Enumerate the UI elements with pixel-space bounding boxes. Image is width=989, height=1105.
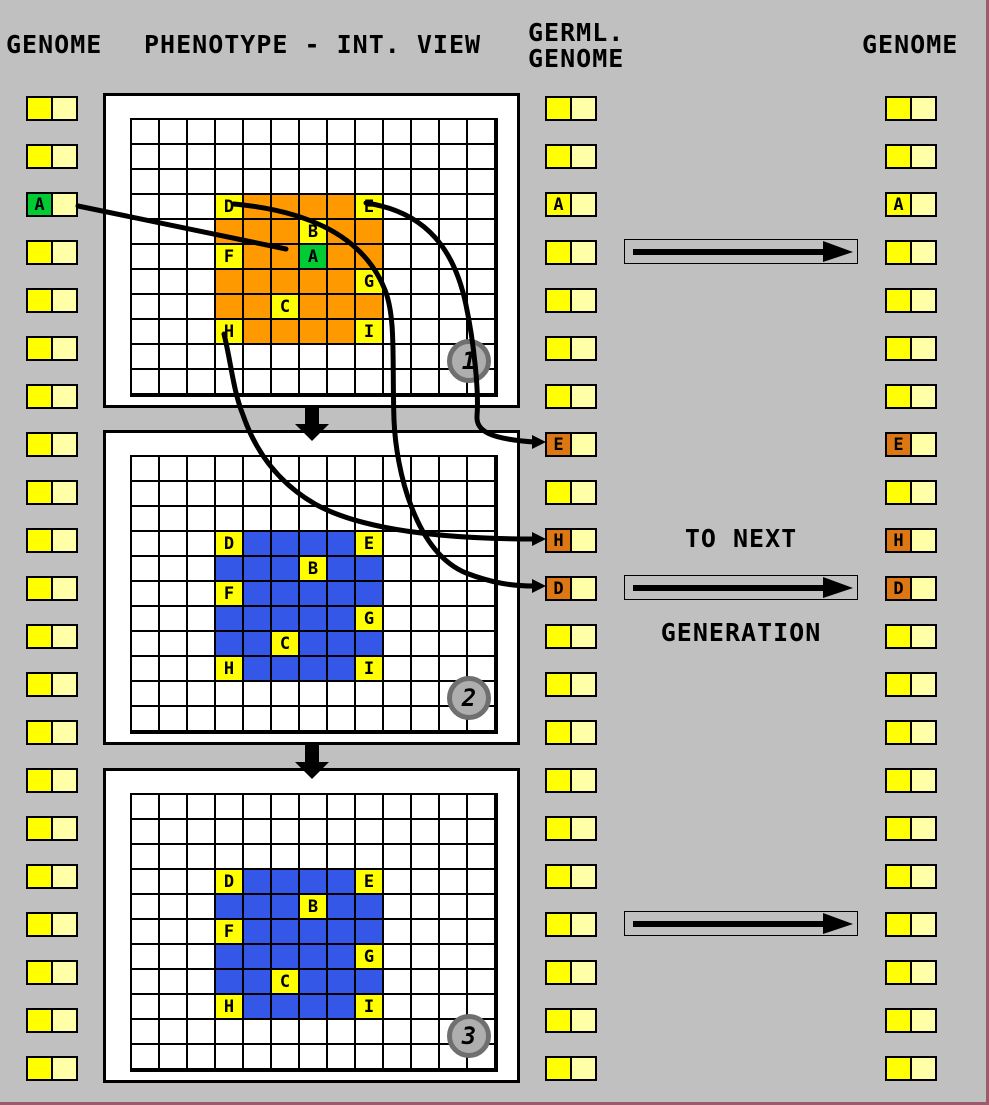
grid-cell — [384, 370, 412, 395]
grid-cell — [384, 945, 412, 970]
grid-cell — [132, 507, 160, 532]
body-cell — [272, 270, 300, 295]
gene-pair — [26, 240, 80, 265]
body-cell — [300, 532, 328, 557]
gene-allele-right — [51, 336, 78, 361]
grid-cell — [356, 370, 384, 395]
gene-allele-right — [570, 912, 597, 937]
grid-cell — [300, 457, 328, 482]
gene-pair-e: E — [885, 432, 939, 457]
grid-cell — [272, 482, 300, 507]
gene-allele-right — [910, 144, 937, 169]
gene-allele-right — [910, 720, 937, 745]
arrowhead-d — [532, 579, 546, 593]
gene-allele-a: A — [885, 192, 912, 217]
grid-cell — [412, 607, 440, 632]
body-cell — [272, 607, 300, 632]
grid-cell — [160, 120, 188, 145]
gene-pair — [545, 336, 599, 361]
grid-cell — [188, 845, 216, 870]
grid-cell — [160, 482, 188, 507]
grid-cell — [300, 145, 328, 170]
body-cell — [244, 920, 272, 945]
grid-cell — [440, 457, 468, 482]
gene-allele-right — [51, 96, 78, 121]
body-cell — [300, 945, 328, 970]
gene-pair — [26, 528, 80, 553]
grid-cell — [160, 457, 188, 482]
gene-pair — [26, 384, 80, 409]
grid-cell — [272, 120, 300, 145]
body-cell — [300, 657, 328, 682]
gene-allele-e: E — [885, 432, 912, 457]
body-cell — [216, 970, 244, 995]
gene-pair — [26, 1056, 80, 1081]
body-cell — [328, 895, 356, 920]
grid-cell — [160, 707, 188, 732]
gene-allele-left — [26, 288, 53, 313]
gene-allele-right — [570, 672, 597, 697]
grid-cell — [412, 120, 440, 145]
grid-cell — [412, 532, 440, 557]
body-cell — [272, 995, 300, 1020]
gene-pair — [885, 720, 939, 745]
grid-cell — [440, 820, 468, 845]
grid-cell — [160, 195, 188, 220]
grid-cell — [132, 845, 160, 870]
grid-cell — [188, 120, 216, 145]
gene-allele-right — [51, 624, 78, 649]
grid-cell — [244, 507, 272, 532]
gene-allele-left — [26, 960, 53, 985]
gene-pair — [885, 1056, 939, 1081]
grid-cell — [384, 1020, 412, 1045]
grid-cell — [160, 995, 188, 1020]
grid-cell — [188, 632, 216, 657]
grid-cell — [384, 507, 412, 532]
grid-cell — [356, 1020, 384, 1045]
gene-allele-right — [570, 1008, 597, 1033]
grid-cell — [440, 295, 468, 320]
body-cell — [356, 220, 384, 245]
grid-cell — [216, 507, 244, 532]
grid-cell — [384, 195, 412, 220]
gene-allele-right — [51, 720, 78, 745]
grid-cell — [412, 245, 440, 270]
grid-cell — [440, 795, 468, 820]
gene-allele-left — [885, 720, 912, 745]
grid-cell — [188, 582, 216, 607]
body-cell — [300, 270, 328, 295]
grid-cell — [384, 295, 412, 320]
gene-allele-left — [885, 624, 912, 649]
grid-cell — [412, 220, 440, 245]
grid-cell — [244, 145, 272, 170]
phenotype-grid-2: DEBFGCHI — [130, 455, 498, 734]
body-cell — [328, 245, 356, 270]
grid-cell — [132, 295, 160, 320]
grid-cell — [188, 320, 216, 345]
gene-allele-left — [26, 384, 53, 409]
gene-allele-right — [910, 384, 937, 409]
body-cell — [356, 245, 384, 270]
gene-allele-right — [910, 1056, 937, 1081]
grid-cell — [244, 845, 272, 870]
grid-cell — [384, 920, 412, 945]
body-cell — [300, 970, 328, 995]
gene-allele-right — [910, 864, 937, 889]
grid-cell — [160, 345, 188, 370]
gene-pair — [26, 144, 80, 169]
gene-allele-left — [26, 336, 53, 361]
body-cell — [244, 870, 272, 895]
grid-cell — [160, 945, 188, 970]
grid-cell — [412, 707, 440, 732]
gene-allele-right — [51, 480, 78, 505]
gene-cell-e: E — [356, 870, 384, 895]
gene-allele-right — [570, 144, 597, 169]
right-arrow-icon — [625, 912, 857, 935]
generation-arrow-1 — [624, 239, 858, 264]
grid-cell — [160, 920, 188, 945]
grid-cell — [132, 195, 160, 220]
body-cell — [300, 582, 328, 607]
grid-cell — [468, 845, 496, 870]
gene-cell-b: B — [300, 895, 328, 920]
grid-cell — [384, 895, 412, 920]
grid-cell — [468, 270, 496, 295]
gene-pair — [545, 624, 599, 649]
grid-cell — [384, 270, 412, 295]
body-cell — [328, 632, 356, 657]
gene-allele-left — [885, 912, 912, 937]
grid-cell — [216, 120, 244, 145]
gene-allele-right — [910, 336, 937, 361]
body-cell — [216, 895, 244, 920]
body-cell — [272, 195, 300, 220]
gene-allele-left — [26, 1008, 53, 1033]
grid-cell — [132, 170, 160, 195]
gene-allele-left — [545, 864, 572, 889]
body-cell — [328, 607, 356, 632]
gene-allele-right — [570, 432, 597, 457]
body-cell — [356, 582, 384, 607]
grid-cell — [412, 632, 440, 657]
gene-allele-left — [26, 720, 53, 745]
grid-cell — [328, 170, 356, 195]
gene-pair — [26, 288, 80, 313]
grid-cell — [216, 482, 244, 507]
gene-pair — [26, 336, 80, 361]
gene-pair — [885, 240, 939, 265]
right-arrow-icon — [625, 576, 857, 599]
grid-cell — [412, 145, 440, 170]
gene-cell-d: D — [216, 870, 244, 895]
grid-cell — [384, 795, 412, 820]
body-cell — [244, 220, 272, 245]
gene-pair — [885, 336, 939, 361]
gene-allele-right — [910, 528, 937, 553]
grid-cell — [412, 295, 440, 320]
gene-allele-left — [885, 1056, 912, 1081]
grid-cell — [384, 457, 412, 482]
grid-cell — [328, 845, 356, 870]
grid-cell — [440, 120, 468, 145]
grid-cell — [160, 582, 188, 607]
gene-allele-left — [26, 864, 53, 889]
grid-cell — [188, 270, 216, 295]
gene-allele-right — [910, 1008, 937, 1033]
grid-cell — [384, 632, 412, 657]
grid-cell — [356, 120, 384, 145]
grid-cell — [412, 845, 440, 870]
gene-pair — [545, 1056, 599, 1081]
grid-cell — [160, 682, 188, 707]
body-cell — [216, 632, 244, 657]
body-cell — [328, 295, 356, 320]
grid-cell — [384, 607, 412, 632]
gene-pair — [545, 96, 599, 121]
grid-cell — [300, 1045, 328, 1070]
grid-cell — [132, 482, 160, 507]
gene-allele-right — [910, 288, 937, 313]
gene-allele-left — [545, 144, 572, 169]
grid-cell — [244, 345, 272, 370]
body-cell — [300, 870, 328, 895]
gene-allele-left — [26, 432, 53, 457]
grid-cell — [412, 345, 440, 370]
gene-allele-left — [545, 1008, 572, 1033]
grid-cell — [384, 995, 412, 1020]
grid-cell — [188, 507, 216, 532]
grid-cell — [160, 1045, 188, 1070]
grid-cell — [188, 370, 216, 395]
grid-cell — [188, 820, 216, 845]
grid-cell — [412, 995, 440, 1020]
gene-cell-e: E — [356, 195, 384, 220]
gene-allele-right — [570, 384, 597, 409]
body-cell — [328, 945, 356, 970]
grid-cell — [384, 482, 412, 507]
grid-cell — [132, 895, 160, 920]
gene-pair — [26, 624, 80, 649]
grid-cell — [356, 482, 384, 507]
gene-allele-left — [26, 528, 53, 553]
gene-allele-left — [545, 624, 572, 649]
gene-allele-right — [910, 432, 937, 457]
grid-cell — [440, 945, 468, 970]
grid-cell — [328, 507, 356, 532]
grid-cell — [300, 845, 328, 870]
gene-allele-right — [910, 960, 937, 985]
grid-cell — [188, 220, 216, 245]
gene-cell-f: F — [216, 920, 244, 945]
grid-cell — [132, 1045, 160, 1070]
grid-cell — [468, 557, 496, 582]
gene-allele-left — [545, 960, 572, 985]
grid-cell — [160, 295, 188, 320]
grid-cell — [440, 270, 468, 295]
grid-cell — [132, 707, 160, 732]
gene-allele-right — [910, 96, 937, 121]
grid-cell — [440, 195, 468, 220]
grid-cell — [216, 795, 244, 820]
grid-cell — [328, 120, 356, 145]
body-cell — [328, 320, 356, 345]
gene-allele-left — [885, 96, 912, 121]
grid-cell — [216, 845, 244, 870]
body-cell — [272, 582, 300, 607]
grid-cell — [244, 1045, 272, 1070]
grid-cell — [132, 532, 160, 557]
grid-cell — [468, 220, 496, 245]
grid-cell — [356, 795, 384, 820]
grid-cell — [188, 995, 216, 1020]
grid-cell — [468, 820, 496, 845]
grid-cell — [384, 1045, 412, 1070]
body-cell — [328, 195, 356, 220]
grid-cell — [412, 507, 440, 532]
grid-cell — [132, 145, 160, 170]
grid-cell — [440, 220, 468, 245]
grid-cell — [160, 970, 188, 995]
generation-arrow-3 — [624, 911, 858, 936]
grid-cell — [132, 120, 160, 145]
gene-cell-b: B — [300, 220, 328, 245]
grid-cell — [468, 945, 496, 970]
gene-allele-left — [545, 240, 572, 265]
body-cell — [300, 607, 328, 632]
grid-cell — [356, 170, 384, 195]
grid-cell — [384, 170, 412, 195]
grid-cell — [412, 582, 440, 607]
body-cell — [244, 245, 272, 270]
grid-cell — [272, 345, 300, 370]
body-cell — [328, 870, 356, 895]
grid-cell — [300, 707, 328, 732]
grid-cell — [244, 457, 272, 482]
gene-allele-left — [26, 1056, 53, 1081]
grid-cell — [384, 120, 412, 145]
gene-pair — [545, 144, 599, 169]
grid-cell — [132, 1020, 160, 1045]
gene-cell-i: I — [356, 320, 384, 345]
gene-allele-right — [910, 240, 937, 265]
grid-cell — [384, 582, 412, 607]
body-cell — [328, 557, 356, 582]
gene-pair — [885, 96, 939, 121]
gene-allele-right — [910, 624, 937, 649]
body-cell — [328, 920, 356, 945]
gene-allele-right — [51, 960, 78, 985]
body-cell — [244, 295, 272, 320]
grid-cell — [160, 795, 188, 820]
gene-pair — [26, 720, 80, 745]
grid-cell — [188, 245, 216, 270]
grid-cell — [356, 820, 384, 845]
grid-cell — [132, 457, 160, 482]
body-cell — [328, 657, 356, 682]
body-cell — [272, 320, 300, 345]
grid-cell — [244, 795, 272, 820]
grid-cell — [216, 707, 244, 732]
grid-cell — [160, 370, 188, 395]
gene-pair — [545, 912, 599, 937]
gene-allele-left — [545, 384, 572, 409]
grid-cell — [160, 170, 188, 195]
grid-cell — [188, 532, 216, 557]
grid-cell — [300, 820, 328, 845]
grid-cell — [160, 145, 188, 170]
gene-allele-left — [885, 240, 912, 265]
grid-cell — [440, 145, 468, 170]
step-badge-2: 2 — [447, 676, 491, 720]
grid-cell — [188, 920, 216, 945]
gene-pair — [26, 576, 80, 601]
grid-cell — [468, 970, 496, 995]
grid-cell — [132, 557, 160, 582]
grid-cell — [132, 320, 160, 345]
gene-allele-left — [26, 240, 53, 265]
grid-cell — [384, 845, 412, 870]
grid-cell — [440, 845, 468, 870]
grid-cell — [188, 145, 216, 170]
gene-allele-left — [545, 816, 572, 841]
grid-cell — [356, 1045, 384, 1070]
grid-cell — [132, 245, 160, 270]
gene-allele-left — [885, 480, 912, 505]
body-cell — [328, 995, 356, 1020]
gene-allele-left — [545, 768, 572, 793]
phenotype-panel-1: DEBFAGCHI1 — [103, 93, 520, 408]
grid-cell — [412, 945, 440, 970]
step-badge-1: 1 — [447, 339, 491, 383]
body-cell — [244, 895, 272, 920]
gene-allele-right — [570, 96, 597, 121]
gene-allele-right — [910, 768, 937, 793]
gene-allele-left — [545, 480, 572, 505]
grid-cell — [468, 120, 496, 145]
grid-cell — [440, 532, 468, 557]
gene-allele-left — [26, 912, 53, 937]
gene-pair — [885, 384, 939, 409]
gene-allele-right — [51, 528, 78, 553]
gene-cell-d: D — [216, 532, 244, 557]
grid-cell — [468, 195, 496, 220]
grid-cell — [244, 682, 272, 707]
phenotype-grid-3: DEBFGCHI — [130, 793, 498, 1072]
gene-allele-right — [570, 240, 597, 265]
body-cell — [244, 632, 272, 657]
grid-cell — [188, 557, 216, 582]
grid-cell — [412, 370, 440, 395]
gene-allele-right — [51, 384, 78, 409]
grid-cell — [468, 895, 496, 920]
body-cell — [356, 557, 384, 582]
grid-cell — [328, 482, 356, 507]
gene-pair-h: H — [545, 528, 599, 553]
grid-cell — [244, 1020, 272, 1045]
grid-cell — [216, 345, 244, 370]
grid-cell — [132, 995, 160, 1020]
body-cell — [244, 657, 272, 682]
gene-allele-right — [51, 816, 78, 841]
grid-cell — [188, 1020, 216, 1045]
grid-cell — [468, 507, 496, 532]
grid-cell — [412, 457, 440, 482]
gene-allele-right — [51, 288, 78, 313]
gene-pair-a: A — [885, 192, 939, 217]
